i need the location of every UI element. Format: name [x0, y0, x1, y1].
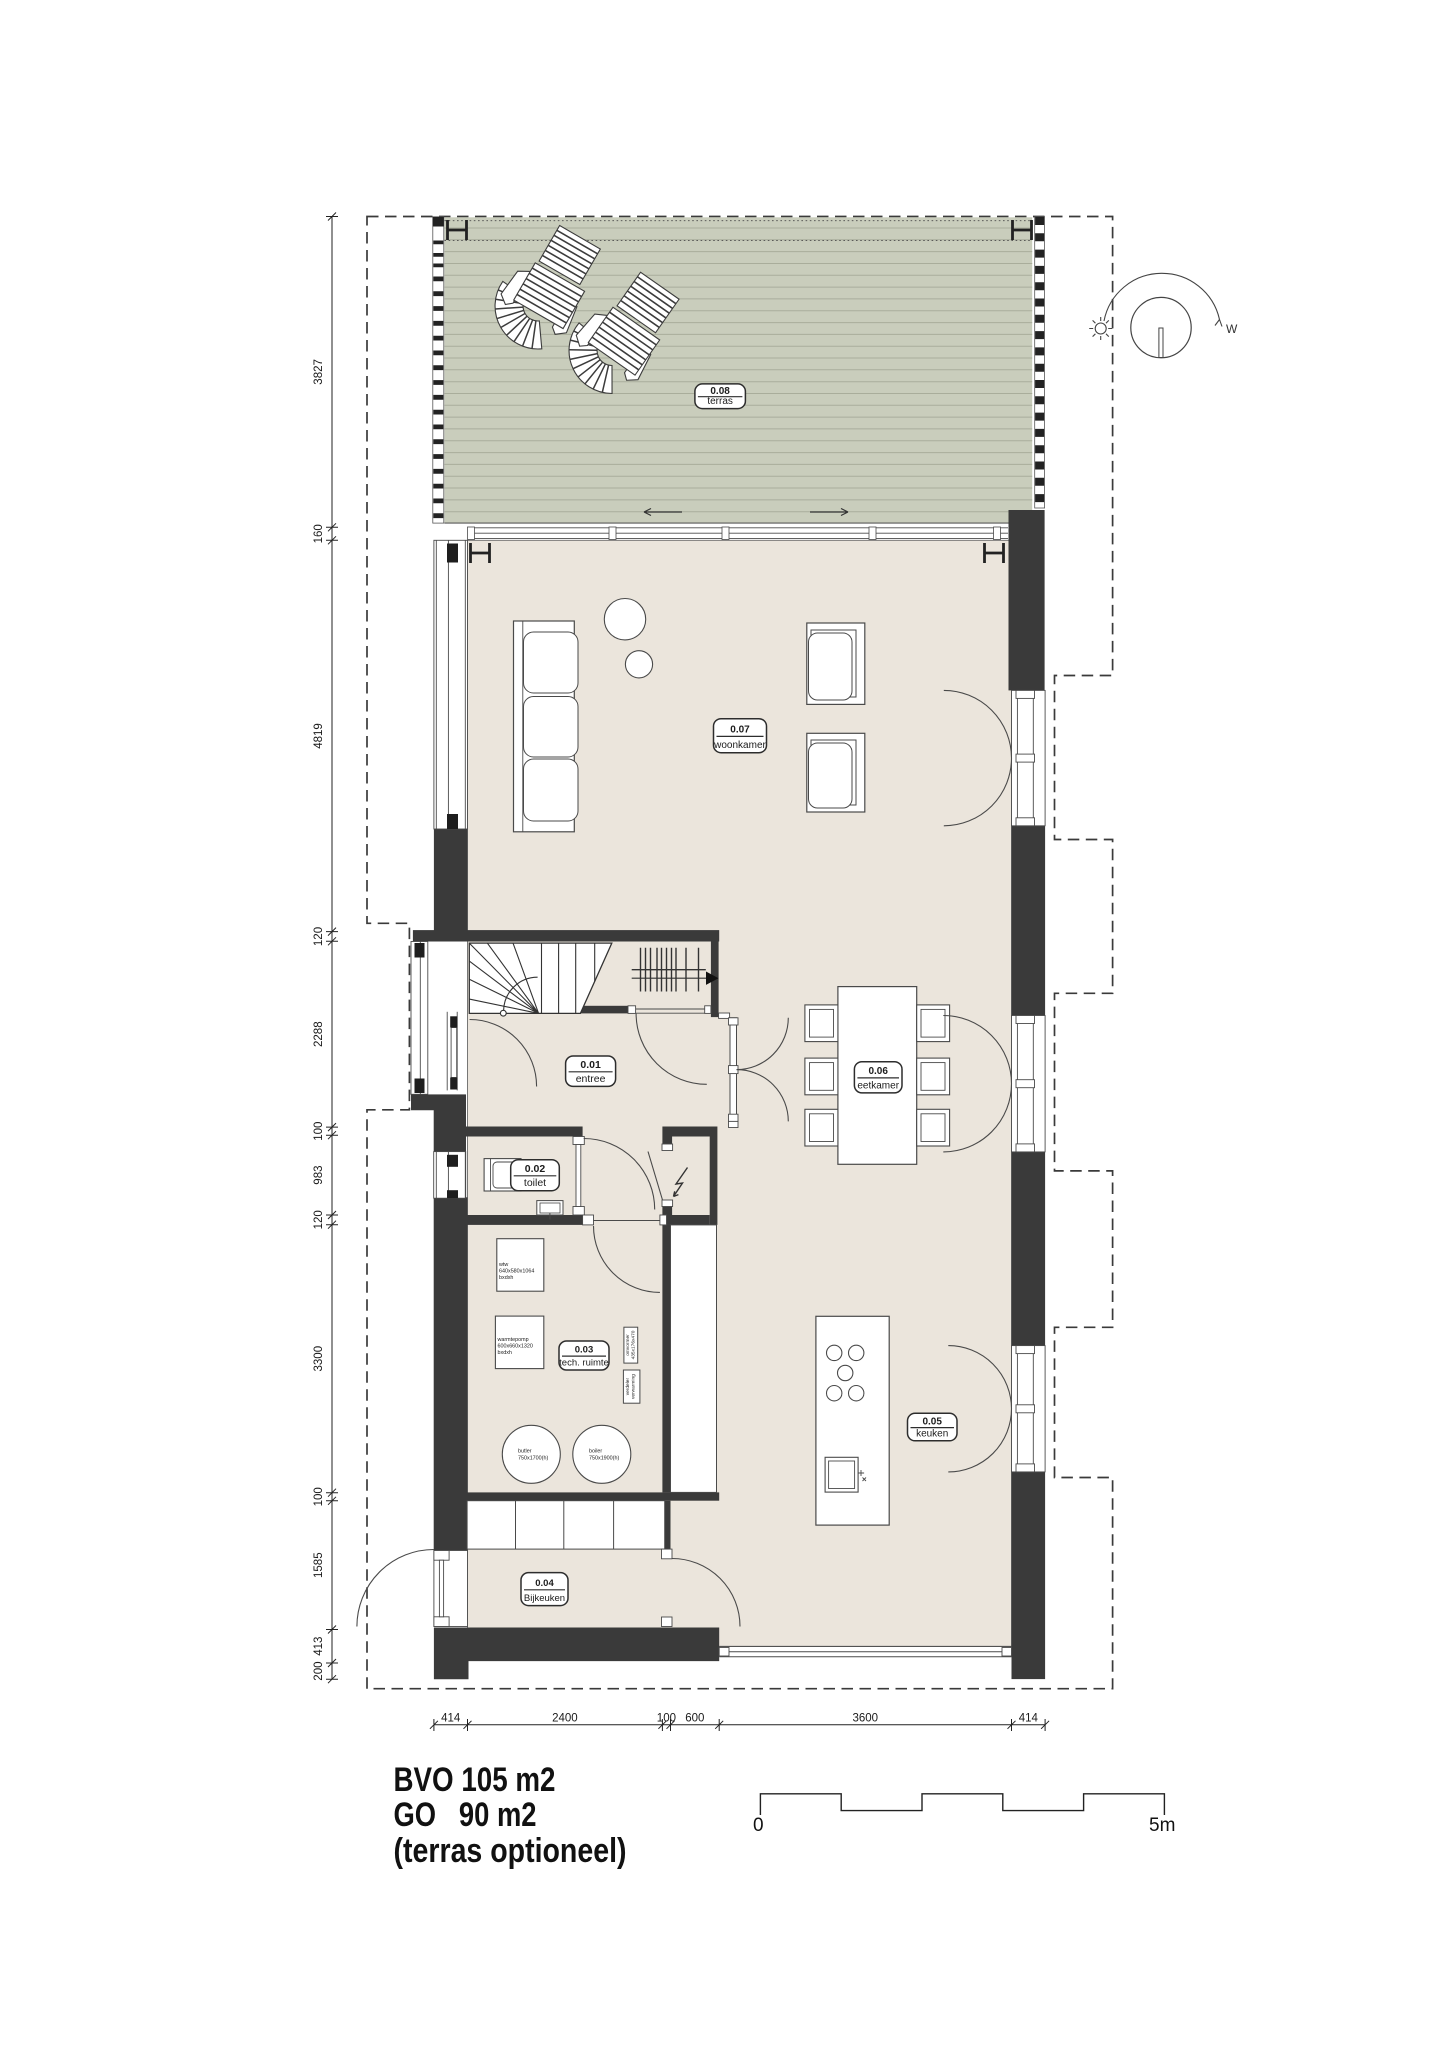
svg-text:0.07: 0.07: [730, 724, 750, 735]
svg-text:tech. ruimte: tech. ruimte: [559, 1358, 609, 1369]
svg-text:414: 414: [441, 1713, 461, 1725]
svg-text:0.01: 0.01: [580, 1059, 601, 1071]
svg-text:eetkamer: eetkamer: [857, 1080, 899, 1091]
svg-text:3600: 3600: [853, 1713, 879, 1725]
svg-text:414: 414: [1019, 1713, 1039, 1725]
svg-text:600x660x1320: 600x660x1320: [498, 1344, 533, 1350]
svg-text:warmtepomp: warmtepomp: [497, 1337, 529, 1343]
svg-text:omvormer: omvormer: [625, 1334, 631, 1356]
svg-text:W: W: [1226, 322, 1238, 336]
svg-text:woonkamer: woonkamer: [713, 740, 766, 751]
svg-text:3300: 3300: [313, 1346, 325, 1372]
svg-text:keuken: keuken: [916, 1428, 948, 1439]
svg-text:160: 160: [313, 524, 325, 543]
svg-text:butler: butler: [518, 1449, 532, 1455]
svg-text:bxdxh: bxdxh: [499, 1275, 513, 1281]
svg-text:100: 100: [313, 1122, 325, 1141]
svg-text:boiler: boiler: [589, 1449, 602, 1455]
svg-text:BVO 105 m2: BVO 105 m2: [394, 1761, 556, 1799]
svg-text:2400: 2400: [552, 1713, 578, 1725]
svg-text:verwarming: verwarming: [631, 1374, 637, 1399]
svg-text:(terras optioneel): (terras optioneel): [394, 1832, 627, 1870]
svg-text:0.05: 0.05: [922, 1416, 942, 1427]
svg-text:100: 100: [657, 1713, 676, 1725]
svg-text:200: 200: [313, 1662, 325, 1681]
svg-text:600: 600: [685, 1713, 704, 1725]
svg-text:wtw: wtw: [498, 1262, 508, 1268]
svg-text:750x1900(h): 750x1900(h): [589, 1456, 619, 1462]
svg-text:0.04: 0.04: [535, 1578, 554, 1589]
svg-text:0: 0: [753, 1815, 764, 1836]
svg-text:120: 120: [313, 1210, 325, 1229]
svg-text:terras: terras: [707, 396, 733, 407]
svg-text:100: 100: [313, 1487, 325, 1506]
svg-text:120: 120: [313, 927, 325, 946]
svg-text:983: 983: [313, 1166, 325, 1185]
svg-text:413: 413: [313, 1637, 325, 1656]
svg-text:750x1700(h): 750x1700(h): [518, 1456, 548, 1462]
svg-text:3827: 3827: [313, 359, 325, 385]
svg-text:1585: 1585: [313, 1552, 325, 1578]
svg-text:0.03: 0.03: [575, 1345, 594, 1356]
svg-text:4819: 4819: [313, 723, 325, 749]
svg-text:640x580x1064: 640x580x1064: [499, 1269, 534, 1275]
svg-text:GO 90 m2: GO 90 m2: [394, 1796, 537, 1834]
svg-text:2288: 2288: [313, 1021, 325, 1047]
svg-text:bxdxh: bxdxh: [498, 1350, 512, 1356]
svg-text:0.06: 0.06: [868, 1066, 888, 1077]
svg-text:5m: 5m: [1149, 1815, 1175, 1836]
svg-text:0.02: 0.02: [525, 1163, 546, 1175]
svg-text:435x176x470: 435x176x470: [631, 1330, 637, 1359]
svg-text:Bijkeuken: Bijkeuken: [524, 1593, 565, 1604]
svg-text:verdeler: verdeler: [625, 1378, 631, 1396]
svg-text:toilet: toilet: [524, 1177, 546, 1189]
svg-text:entree: entree: [576, 1073, 606, 1085]
